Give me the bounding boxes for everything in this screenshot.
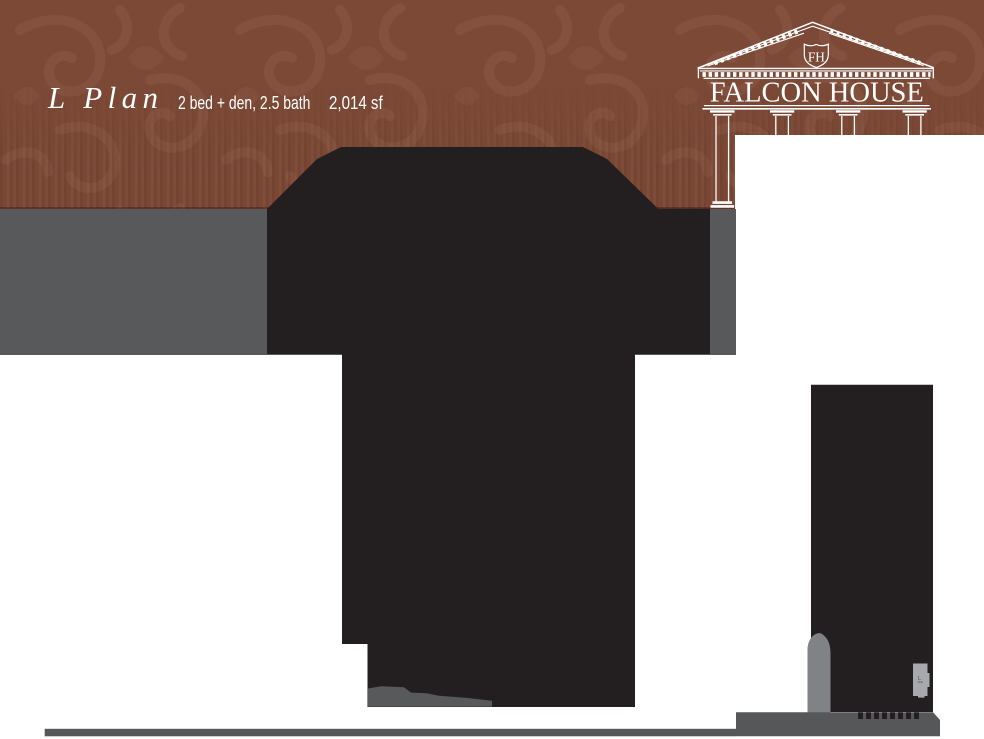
svg-text:FALCON HOUSE: FALCON HOUSE xyxy=(710,78,924,109)
svg-text:L: L xyxy=(918,676,921,682)
svg-text:FH: FH xyxy=(808,50,825,65)
